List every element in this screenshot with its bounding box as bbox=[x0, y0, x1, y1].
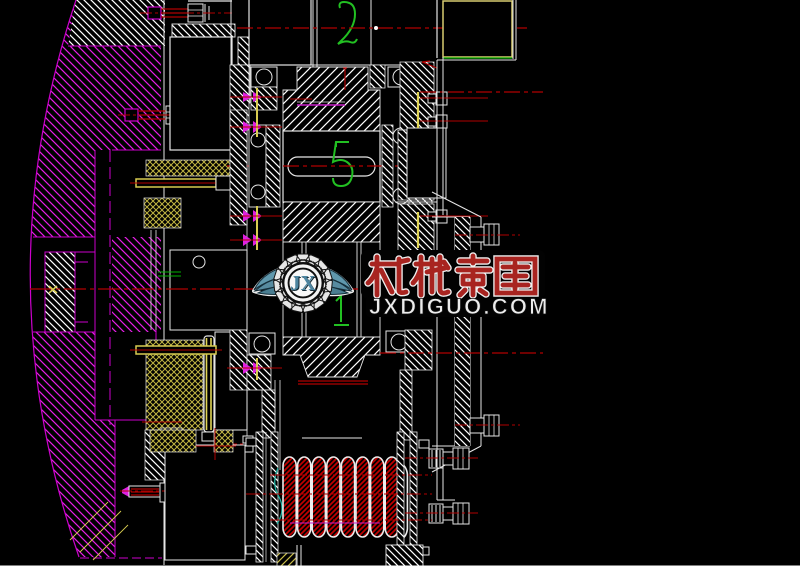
svg-text:JX: JX bbox=[290, 271, 316, 295]
svg-text:JXDIGUO.COM: JXDIGUO.COM bbox=[369, 294, 550, 319]
